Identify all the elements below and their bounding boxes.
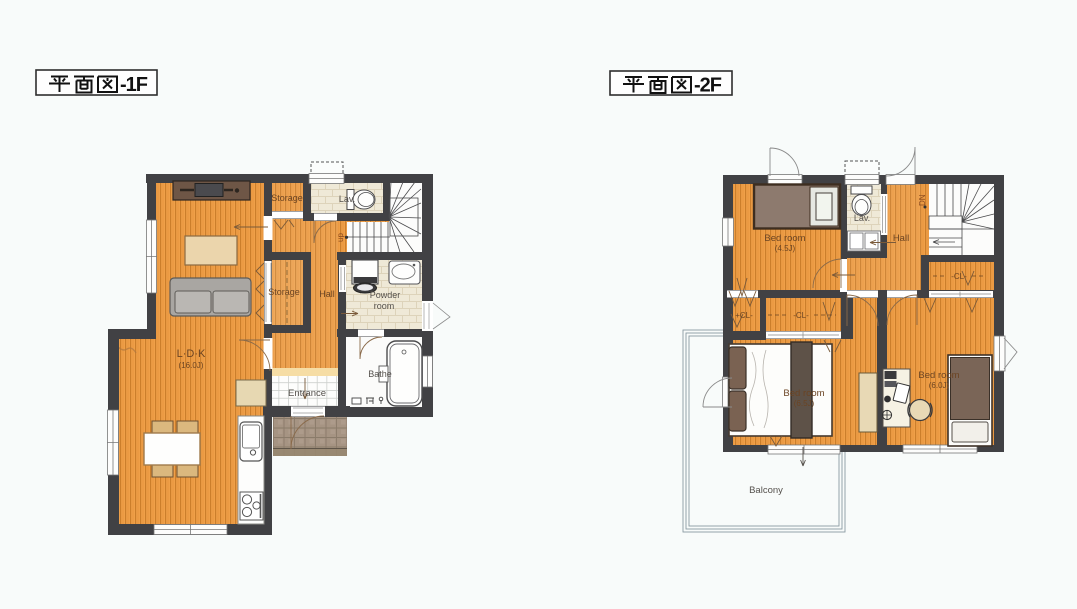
svg-text:-CL-: -CL-	[951, 272, 967, 281]
svg-text:Bed room: Bed room	[764, 233, 805, 244]
svg-text:Storage: Storage	[268, 287, 300, 297]
svg-text:(4.5J): (4.5J)	[775, 244, 796, 253]
svg-text:Bed room: Bed room	[918, 370, 959, 381]
svg-text:L·D·K: L·D·K	[177, 348, 206, 360]
svg-text:Hall: Hall	[319, 289, 335, 299]
svg-text:(6.5J): (6.5J)	[794, 399, 815, 408]
svg-text:Hall: Hall	[893, 233, 909, 244]
svg-text:Balcony: Balcony	[749, 485, 783, 496]
svg-text:Storage: Storage	[271, 193, 303, 203]
svg-text:-CL-: -CL-	[793, 311, 809, 320]
svg-text:(6.0J): (6.0J)	[929, 381, 950, 390]
svg-text:Lav.: Lav.	[339, 194, 355, 204]
svg-text:up: up	[336, 233, 345, 242]
svg-text:Entrance: Entrance	[288, 388, 326, 399]
svg-text:-1F: -1F	[120, 74, 148, 96]
svg-text:Bathe: Bathe	[368, 369, 392, 379]
svg-text:DN: DN	[918, 194, 927, 206]
svg-text:Bed room: Bed room	[783, 388, 824, 399]
svg-text:Lav.: Lav.	[854, 213, 870, 223]
svg-text:Powder: Powder	[370, 290, 401, 300]
svg-text:room: room	[374, 301, 395, 311]
svg-text:-2F: -2F	[694, 75, 722, 97]
svg-text:+CL-: +CL-	[735, 311, 753, 320]
svg-text:(16.0J): (16.0J)	[179, 361, 204, 370]
